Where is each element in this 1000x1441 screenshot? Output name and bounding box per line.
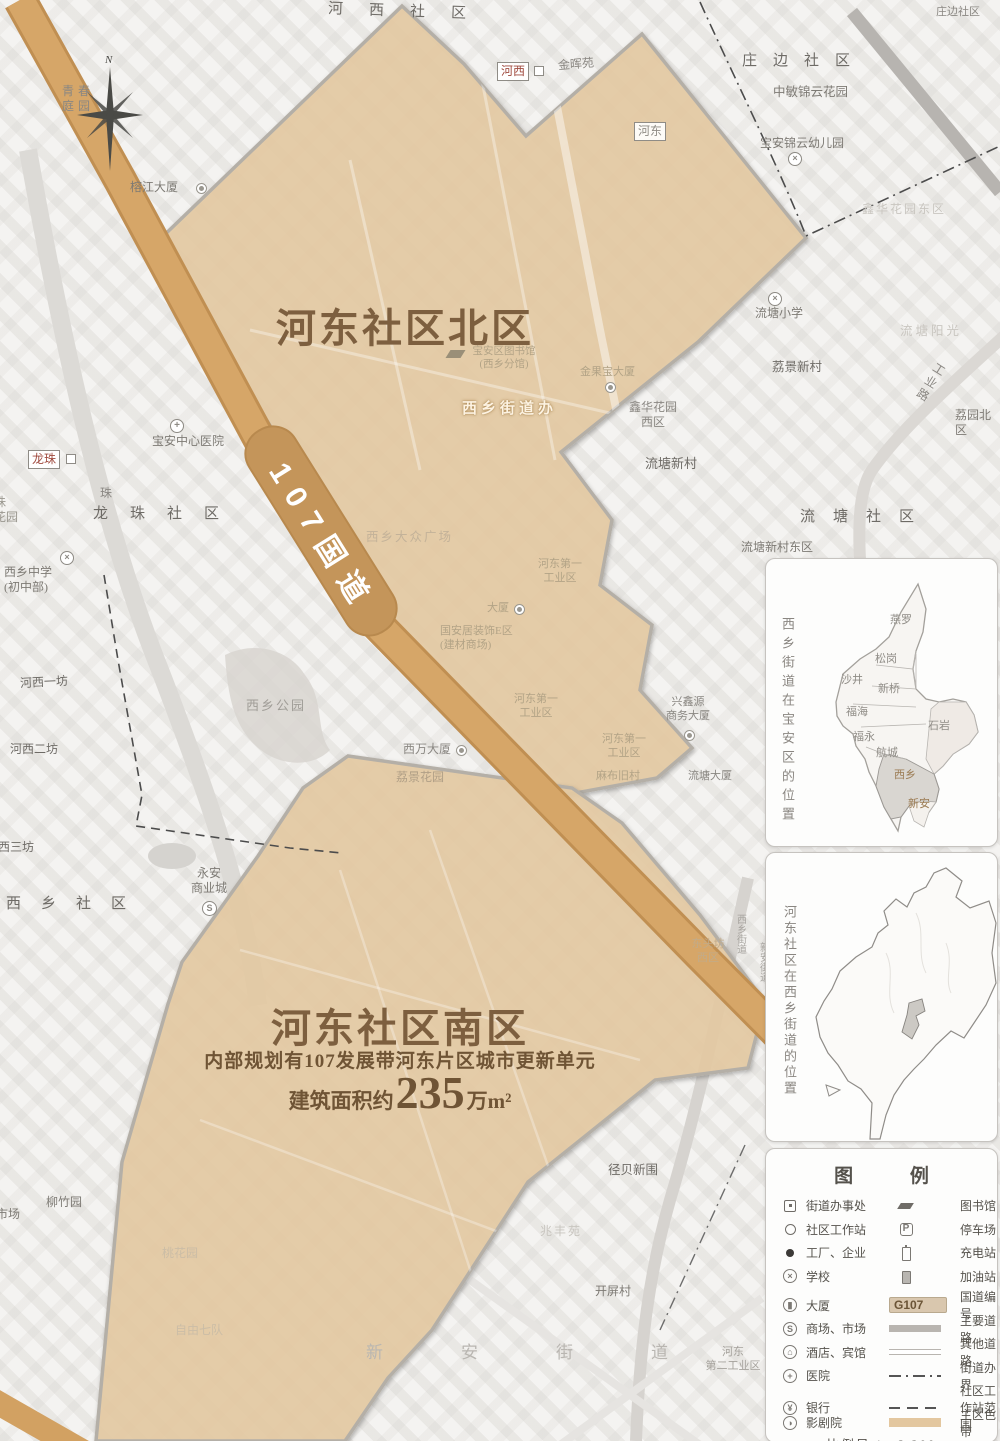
legend-label: 工厂、企业 xyxy=(806,1244,892,1261)
map-label-dasha: 大厦 xyxy=(487,602,509,616)
inset-district-fuhai: 福海 xyxy=(846,703,868,719)
map-label-rongjiang: 榕江大厦 xyxy=(130,180,178,195)
map-label-liutang-xincun: 流塘新村 xyxy=(645,456,697,472)
map-label-ximan-dasha: 西万大厦 xyxy=(403,742,451,757)
map-label-lijing-xincun: 荔景新村 xyxy=(772,360,822,376)
school-icon: × xyxy=(781,1267,799,1285)
inset-district-yanluo: 燕罗 xyxy=(890,611,912,627)
workstation-marker-longzhu xyxy=(66,454,76,464)
market-icon: S xyxy=(781,1320,799,1338)
inset-district-shiyan: 石岩 xyxy=(928,717,950,733)
legend-label: 大厦 xyxy=(806,1297,892,1314)
school-icon: × xyxy=(788,152,802,166)
map-label-mabu: 麻布旧村 xyxy=(596,770,640,784)
legend-title: 图 例 xyxy=(766,1161,997,1188)
highway-corner-band xyxy=(0,1396,84,1441)
map-label-yongan: 永安 商业城 xyxy=(186,866,232,896)
legend-row: ▮ 大厦 G107 国道编号 xyxy=(766,1288,997,1312)
map-label-hedong2: 河东 第二工业区 xyxy=(700,1346,766,1374)
legend-label: 充电站 xyxy=(960,1244,997,1261)
zone-band-swatch xyxy=(889,1418,941,1427)
hospital-cross-icon: + xyxy=(170,419,184,433)
building-icon: ▮ xyxy=(781,1296,799,1314)
inset-district-xinqiao: 新桥 xyxy=(878,680,900,696)
legend-row: 社区工作站 停车场 xyxy=(766,1218,997,1242)
street-office-icon xyxy=(781,1197,799,1215)
hedong-box-label: 河东 xyxy=(634,122,666,141)
legend-label: 医院 xyxy=(806,1367,892,1384)
inset-district-songgang: 松岗 xyxy=(875,650,897,666)
map-label-hexi-sanfang: 西三坊 xyxy=(0,840,34,855)
charging-station-icon xyxy=(897,1244,915,1262)
map-label-zhongmin: 中敏锦云花园 xyxy=(773,85,848,101)
legend-panel: 图 例 街道办事处 图书馆 社区工作站 停车场 工厂、企业 充电站 × 学校 加… xyxy=(765,1148,998,1441)
theater-icon: ◑ xyxy=(781,1414,799,1432)
map-label-xinhua-west: 鑫华花园 西区 xyxy=(620,400,686,430)
map-label-xixiang-jiedao-v: 西乡街道 xyxy=(733,914,746,954)
zone-south-area: 建筑面积约 235 万m² xyxy=(195,1070,605,1116)
legend-row: S 商场、市场 主要道路 xyxy=(766,1312,997,1336)
map-label-jinhuiyuan: 金晖苑 xyxy=(557,55,594,73)
inset-xixiang-map xyxy=(766,853,997,1141)
legend-label: 影剧院 xyxy=(806,1414,892,1431)
g107-badge: G107 xyxy=(889,1297,947,1313)
map-label-jinguobao: 金果宝大厦 xyxy=(580,366,635,380)
area-prefix: 建筑面积约 xyxy=(289,1085,394,1115)
hospital-icon: + xyxy=(781,1367,799,1385)
factory-icon xyxy=(781,1244,799,1262)
map-label-xixiang-middle-school: 西乡中学 (初中部) xyxy=(4,565,52,595)
legend-row: × 学校 加油站 xyxy=(766,1265,997,1289)
other-road-line xyxy=(889,1349,941,1355)
map-label-hexi-yifang: 河西一坊 xyxy=(20,674,69,691)
legend-label: 学校 xyxy=(806,1268,892,1285)
area-suffix: 万m² xyxy=(467,1085,512,1115)
legend-row: ⌂ 酒店、宾馆 其他道路 xyxy=(766,1335,997,1359)
map-stage: N 107国道 河东社区北区 河东社区南区 内部规划有107发展带河东片区城市更… xyxy=(0,0,1000,1441)
building-poi-icon xyxy=(456,745,467,756)
inset-district-shiyan-shape xyxy=(926,702,978,774)
map-label-xixiang-park: 西乡公园 xyxy=(246,698,306,714)
legend-label: 图书馆 xyxy=(960,1197,997,1214)
hexi-box-label: 河西 xyxy=(497,62,529,81)
road-topright xyxy=(852,12,1000,192)
parking-icon xyxy=(897,1220,915,1238)
map-label-zhaofeng: 兆丰苑 xyxy=(540,1224,582,1239)
legend-label: 停车场 xyxy=(960,1221,997,1238)
legend-row: + 医院 街道办界 xyxy=(766,1359,997,1383)
legend-label: 酒店、宾馆 xyxy=(806,1344,892,1361)
legend-row: 街道办事处 图书馆 xyxy=(766,1194,997,1218)
inset-district-hangcheng: 航城 xyxy=(876,744,898,760)
map-label-xingxinyuan: 兴鑫源 商务大厦 xyxy=(656,696,720,724)
map-label-hexi-erfang: 河西二坊 xyxy=(10,742,58,757)
map-label-dongtou-west: 东头坊 西区 xyxy=(682,938,734,966)
map-label-hedong1b: 河东第一 工业区 xyxy=(506,693,566,721)
longzhu-box-label: 龙珠 xyxy=(28,450,60,469)
map-label-plaza: 西乡大众广场 xyxy=(366,530,453,546)
main-road-line xyxy=(889,1325,941,1332)
compass-n-label: N xyxy=(104,54,113,66)
map-label-baoan-kindergarten: 宝安锦云幼儿园 xyxy=(760,136,844,151)
hotel-icon: ⌂ xyxy=(781,1343,799,1361)
map-label-xinhua-east: 鑫华花园东区 xyxy=(862,202,946,217)
map-label-jiedaoban: 西乡街道办 xyxy=(462,397,557,418)
workstation-range-line xyxy=(889,1407,941,1409)
map-label-hospital: 宝安中心医院 xyxy=(152,434,224,449)
legend-label: 商场、市场 xyxy=(806,1320,892,1337)
inset-district-xinan: 新安 xyxy=(908,795,930,811)
map-label-hedong1c: 河东第一 工业区 xyxy=(594,733,654,761)
map-label-ziyou: 自由七队 xyxy=(175,1323,223,1338)
legend-label: 街道办事处 xyxy=(806,1197,892,1214)
school-icon: × xyxy=(768,292,782,306)
map-label-guoanju: 国安居装饰E区 (建材商场) xyxy=(440,625,513,653)
area-value: 235 xyxy=(394,1070,467,1116)
map-label-liutang-sun: 流塘阳光 xyxy=(900,324,962,340)
map-label-liuzhuyuan: 柳竹园 xyxy=(46,1195,82,1210)
workstation-marker-hexi xyxy=(534,66,544,76)
map-label-longzhu-garden: 珠 花园 xyxy=(0,495,18,525)
map-label-zhuangbian: 庄边社区 xyxy=(742,52,866,71)
legend-row: ¥ 银行 社区工作站范围 xyxy=(766,1382,997,1406)
market-s-icon: S xyxy=(202,901,217,916)
map-label-liutang-east: 流塘新村东区 xyxy=(741,540,813,555)
map-label-jingbei: 径贝新围 xyxy=(608,1163,658,1179)
inset-panel-xixiang: 河东社区在西乡街道的位置 xyxy=(765,852,998,1142)
map-label-zhu: 珠 xyxy=(100,486,112,501)
map-label-shichang: 市场 xyxy=(0,1207,20,1222)
map-label-taohuayuan: 桃花园 xyxy=(162,1246,198,1261)
map-label-longzhu-shequ: 龙珠社区 xyxy=(93,505,241,524)
inset-xixiang-title: 河东社区在西乡街道的位置 xyxy=(780,905,799,1097)
map-label-library: 宝安区图书馆 (西乡分馆) xyxy=(462,345,546,371)
map-label-liyuan-north: 荔园北区 xyxy=(955,408,1000,438)
school-icon: × xyxy=(60,551,74,565)
community-workstation-icon xyxy=(781,1220,799,1238)
map-label-liutang-dasha: 流塘大厦 xyxy=(688,770,732,784)
library-icon xyxy=(897,1197,915,1215)
inset-district-xixiang: 西乡 xyxy=(894,766,916,782)
inset-panel-baoan: 西乡街道在宝安区的位置 燕罗 松岗 沙井 新桥 福海 石岩 福永 航城 西乡 新… xyxy=(765,558,998,847)
legend-label: 主区色带 xyxy=(960,1406,997,1440)
gas-station-icon xyxy=(897,1267,915,1285)
legend-label: 加油站 xyxy=(960,1268,997,1285)
building-poi-icon xyxy=(684,730,695,741)
building-poi-icon xyxy=(514,604,525,615)
legend-label: 社区工作站 xyxy=(806,1221,892,1238)
map-label-zhuangbian-corner: 庄边社区 xyxy=(936,6,980,20)
map-label-qingchun: 青春 庭园 xyxy=(62,84,94,114)
map-label-xixiang-shequ: 西乡社区 xyxy=(6,895,146,914)
building-poi-icon xyxy=(196,183,207,194)
map-label-lijing-garden: 荔景花园 xyxy=(396,770,444,785)
inset-island xyxy=(826,1085,840,1096)
map-label-liutang-shequ: 流塘社区 xyxy=(800,508,932,527)
inset-baoan-map xyxy=(766,559,997,846)
inset-district-shajing: 沙井 xyxy=(841,671,863,687)
inset-district-fuyong: 福永 xyxy=(853,728,875,744)
inset-baoan-title: 西乡街道在宝安区的位置 xyxy=(778,617,797,826)
building-poi-icon xyxy=(605,382,616,393)
map-label-liutang-school: 流塘小学 xyxy=(755,306,803,321)
street-office-boundary-line xyxy=(889,1375,941,1377)
map-label-kaiping: 开屏村 xyxy=(595,1284,631,1299)
map-label-xinan-jiedao: 新安街道 xyxy=(366,1342,746,1363)
map-label-hedong1a: 河东第一 工业区 xyxy=(530,558,590,586)
legend-row: 工厂、企业 充电站 xyxy=(766,1241,997,1265)
